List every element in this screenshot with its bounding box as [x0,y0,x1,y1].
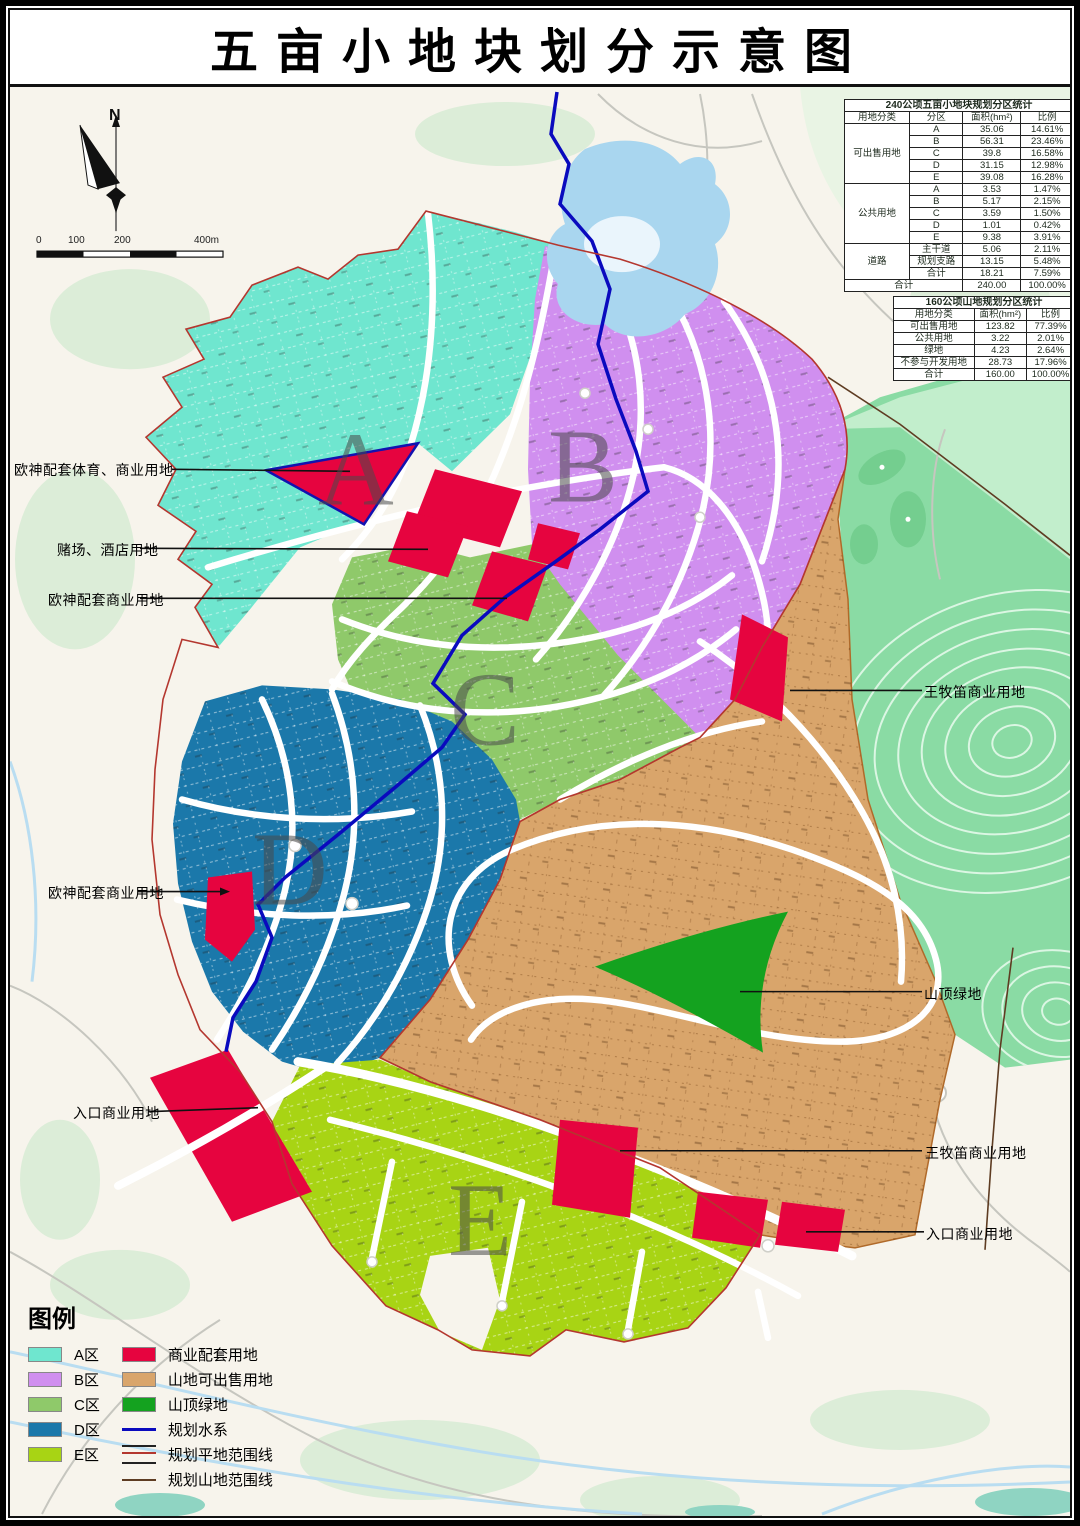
zone-e-swatch [28,1447,62,1462]
water-line-swatch [122,1422,156,1437]
zone-letter-e: E [448,1161,512,1278]
map-area: N A B C [10,87,1070,1516]
callout-casino-hotel: 赌场、酒店用地 [57,540,159,560]
scale-tick-100: 100 [68,235,85,246]
scale-tick-200: 200 [114,235,131,246]
legend-heading: 图例 [28,1299,358,1334]
legend-item-zone-b: B区 [28,1371,100,1387]
zone-letter-d: D [252,811,328,928]
title-bar: 五亩小地块划分示意图 [10,10,1070,87]
legend-item-commercial: 商业配套用地 [122,1346,273,1362]
plan-map-page: 五亩小地块划分示意图 [0,0,1080,1526]
legend-item-mountain-sellable: 山地可出售用地 [122,1371,273,1387]
map-title: 五亩小地块划分示意图 [210,12,870,82]
callout-oushen-commercial-2: 欧神配套商业用地 [48,883,164,903]
page-frame: 五亩小地块划分示意图 [8,8,1072,1518]
north-arrow: N [80,107,126,231]
zone-a-swatch [28,1347,62,1362]
callout-oushen-commercial-1: 欧神配套商业用地 [48,590,164,610]
legend-item-zone-e: E区 [28,1446,100,1462]
zone-letter-a: A [318,410,394,527]
legend: 图例 A区 B区 C区 D区 E区 商业配套用地 山地可出售用地 山顶绿地 规划… [28,1299,358,1487]
legend-item-mountain-boundary: 规划山地范围线 [122,1471,273,1487]
stats-table-240: 240公顷五亩小地块规划分区统计 用地分类分区 面积(hm²)比例 可出售用地 … [844,99,1070,292]
zone-c-swatch [28,1397,62,1412]
scale-bar [37,251,223,257]
legend-item-zone-d: D区 [28,1421,100,1437]
zone-d-swatch [28,1422,62,1437]
hilltop-green-swatch [122,1397,156,1412]
callout-hilltop-green: 山顶绿地 [924,984,982,1004]
legend-item-zone-a: A区 [28,1346,100,1362]
legend-item-hilltop-green: 山顶绿地 [122,1396,273,1412]
callout-entrance-commercial-1: 入口商业用地 [73,1103,160,1123]
stats-table-160: 160公顷山地规划分区统计 用地分类面积(hm²)比例 可出售用地123.827… [893,296,1070,381]
legend-zone-column: A区 B区 C区 D区 E区 [28,1346,100,1487]
parcel-wangmudi-2 [552,1120,638,1218]
mountain-sellable-swatch [122,1372,156,1387]
commercial-swatch [122,1347,156,1362]
callout-wangmudi-commercial-1: 王牧笛商业用地 [924,682,1026,702]
legend-type-column: 商业配套用地 山地可出售用地 山顶绿地 规划水系 规划平地范围线 规划山地范围线 [122,1346,273,1487]
legend-item-zone-c: C区 [28,1396,100,1412]
zone-letter-c: C [450,650,520,767]
legend-item-water-system: 规划水系 [122,1421,273,1437]
zone-letter-b: B [548,407,618,524]
callout-wangmudi-commercial-2: 王牧笛商业用地 [925,1143,1027,1163]
legend-item-flat-boundary: 规划平地范围线 [122,1446,273,1462]
callout-sports-commercial: 欧神配套体育、商业用地 [14,460,174,480]
mountain-boundary-swatch [122,1472,156,1487]
zone-b-swatch [28,1372,62,1387]
scale-tick-0: 0 [36,235,42,246]
scale-tick-400: 400m [194,235,219,246]
flat-boundary-swatch [122,1445,156,1464]
callout-entrance-commercial-2: 入口商业用地 [926,1224,1013,1244]
